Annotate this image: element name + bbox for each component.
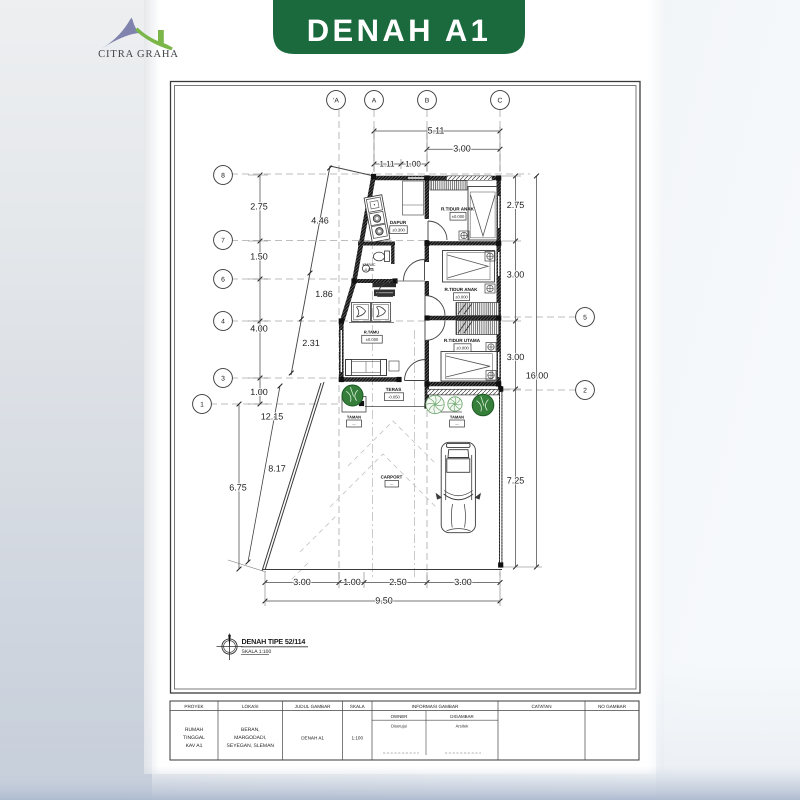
svg-text:CARPORT: CARPORT	[381, 475, 403, 480]
svg-text:R.TIDUR ANAK: R.TIDUR ANAK	[444, 287, 478, 292]
svg-text:BERAN,: BERAN,	[241, 727, 260, 733]
svg-text:3: 3	[221, 375, 225, 382]
svg-text:KM/WC: KM/WC	[362, 263, 375, 267]
svg-text:12.15: 12.15	[261, 412, 284, 422]
svg-text:DAPUR: DAPUR	[390, 220, 407, 225]
svg-text:RUMAH: RUMAH	[185, 727, 204, 733]
svg-text:3.00: 3.00	[507, 352, 525, 362]
svg-text:TINGGAL: TINGGAL	[183, 735, 205, 741]
svg-text:CATATAN: CATATAN	[531, 704, 551, 709]
svg-text:5.11: 5.11	[428, 125, 445, 135]
svg-text:16.00: 16.00	[526, 371, 549, 381]
svg-text:2.31: 2.31	[302, 338, 320, 348]
svg-text:3.00: 3.00	[293, 577, 311, 587]
svg-text:SKALA: SKALA	[350, 704, 366, 709]
svg-text:KAV A1: KAV A1	[186, 743, 203, 749]
svg-text:2.75: 2.75	[250, 202, 268, 212]
svg-text:R.TAMU: R.TAMU	[364, 330, 379, 335]
svg-text:-0.050: -0.050	[388, 395, 400, 400]
svg-text:Disetujui: Disetujui	[391, 724, 407, 729]
svg-text:6.75: 6.75	[229, 483, 247, 493]
svg-text:1.11: 1.11	[380, 160, 396, 169]
svg-text:DIGAMBAR: DIGAMBAR	[450, 714, 473, 719]
svg-text:1:100: 1:100	[352, 736, 364, 741]
svg-text:5: 5	[583, 314, 587, 321]
svg-text:±0.000: ±0.000	[366, 337, 379, 342]
svg-text:7.25: 7.25	[507, 476, 525, 486]
svg-text:-0.050: -0.050	[364, 268, 374, 272]
svg-text:A: A	[372, 97, 377, 104]
svg-text:9.50: 9.50	[375, 595, 393, 605]
svg-text:2: 2	[583, 387, 587, 394]
svg-text:INFORMASI GAMBAR: INFORMASI GAMBAR	[412, 704, 459, 709]
svg-text:3.00: 3.00	[507, 270, 525, 280]
svg-text:LOKASI: LOKASI	[242, 704, 259, 709]
svg-text:PROYEK: PROYEK	[184, 704, 204, 709]
svg-text:1.00: 1.00	[343, 577, 361, 587]
svg-text:1.00: 1.00	[250, 387, 268, 397]
svg-text:8.17: 8.17	[268, 464, 286, 474]
svg-text:3.00: 3.00	[453, 144, 471, 154]
svg-text:3.00: 3.00	[454, 577, 472, 587]
svg-text:SKALA 1:100: SKALA 1:100	[242, 649, 272, 655]
svg-text:1: 1	[200, 401, 204, 408]
svg-text:Arsitek: Arsitek	[456, 724, 470, 729]
svg-text:R.TIDUR ANAK: R.TIDUR ANAK	[441, 207, 475, 212]
svg-text:7: 7	[221, 237, 225, 244]
svg-text:±0.000: ±0.000	[456, 346, 469, 351]
svg-text:1.00: 1.00	[405, 160, 421, 169]
svg-text:OWNER: OWNER	[391, 714, 408, 719]
svg-text:SEYEGAN, SLEMAN: SEYEGAN, SLEMAN	[227, 743, 275, 749]
svg-text:4.46: 4.46	[311, 216, 329, 226]
svg-text:±0.300: ±0.300	[392, 228, 405, 233]
svg-text:'A: 'A	[333, 97, 339, 104]
svg-text:R.TIDUR UTAMA: R.TIDUR UTAMA	[444, 338, 481, 343]
svg-text:CITRA GRAHA: CITRA GRAHA	[98, 49, 179, 60]
svg-text:TAMAN: TAMAN	[347, 415, 361, 420]
svg-text:1.50: 1.50	[250, 252, 268, 262]
svg-text:±0.000: ±0.000	[452, 214, 465, 219]
svg-text:C: C	[498, 97, 503, 104]
svg-text:4.00: 4.00	[250, 324, 268, 334]
svg-text:2.50: 2.50	[389, 577, 407, 587]
svg-text:B: B	[425, 97, 430, 104]
svg-text:1.86: 1.86	[315, 289, 333, 299]
svg-text:4: 4	[221, 318, 225, 325]
svg-text:MARGODADI,: MARGODADI,	[234, 735, 266, 741]
svg-text:NO GAMBAR: NO GAMBAR	[598, 704, 627, 709]
svg-text:6: 6	[221, 276, 225, 283]
svg-text:DENAH A1: DENAH A1	[307, 13, 492, 48]
svg-text:2.75: 2.75	[507, 200, 525, 210]
svg-text:TERAS: TERAS	[386, 387, 402, 392]
svg-text:JUDUL GAMBAR: JUDUL GAMBAR	[295, 704, 332, 709]
svg-text:TAMAN: TAMAN	[450, 415, 464, 420]
svg-text:DENAH A1: DENAH A1	[301, 736, 324, 741]
svg-text:±0.000: ±0.000	[455, 295, 468, 300]
svg-text:8: 8	[221, 172, 225, 179]
svg-text:DENAH TIPE 52/114: DENAH TIPE 52/114	[242, 637, 306, 646]
